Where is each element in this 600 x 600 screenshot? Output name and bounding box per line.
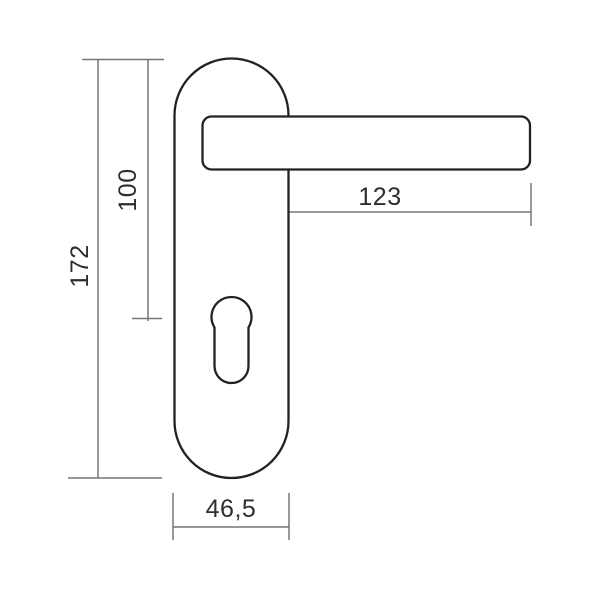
dim-label-plate-height: 172 (66, 244, 94, 287)
door-handle-technical-drawing: 172 100 123 46,5 (0, 0, 600, 600)
part-outline (175, 58, 531, 478)
drawing-canvas: 172 100 123 46,5 (0, 0, 600, 600)
dim-label-handle-axis-height: 100 (114, 168, 142, 211)
dim-label-plate-width: 46,5 (206, 495, 257, 523)
dim-label-lever-length: 123 (358, 183, 401, 211)
keyhole-cutout (212, 297, 252, 383)
lever-handle (203, 117, 531, 170)
